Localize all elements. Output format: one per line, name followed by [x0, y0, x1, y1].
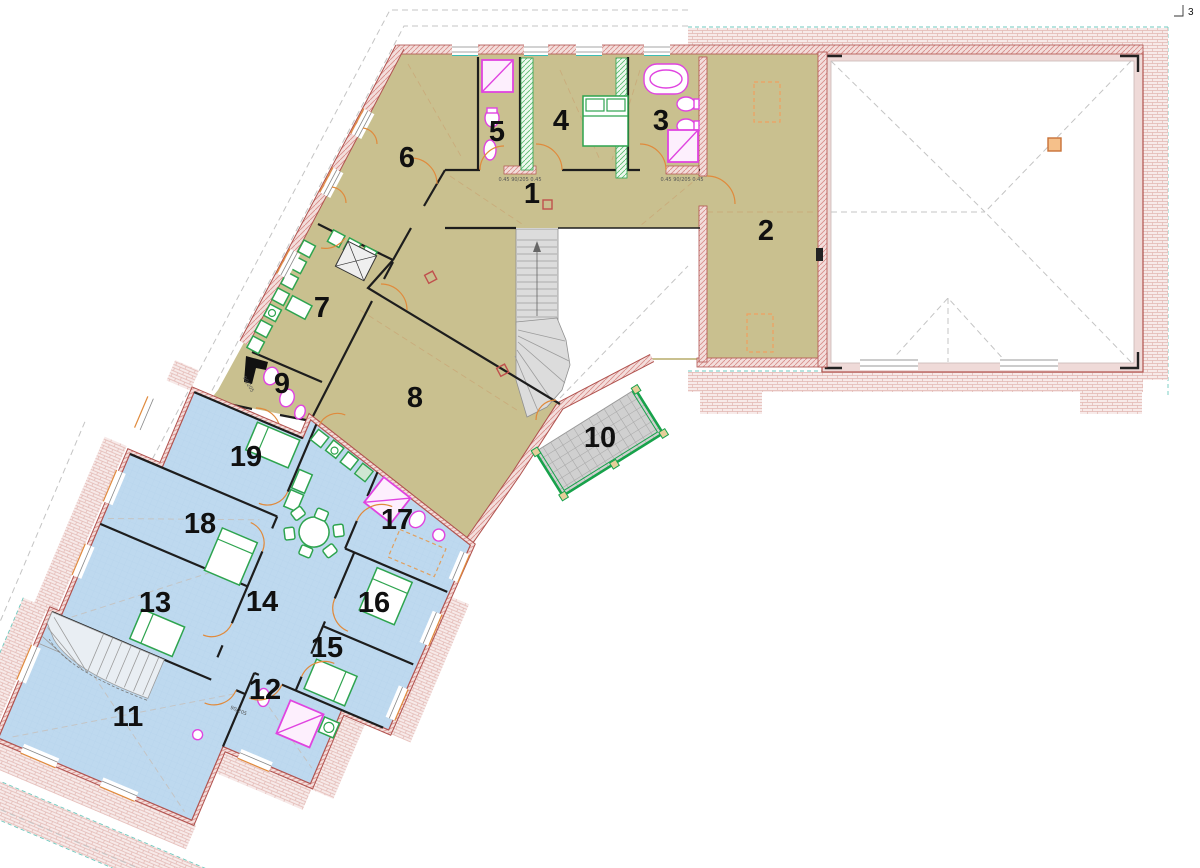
room-label-10: 10	[584, 422, 616, 454]
shower-icon	[482, 60, 513, 92]
room-label-19: 19	[230, 441, 262, 473]
room-label-9: 9	[274, 368, 290, 400]
room-label-4: 4	[553, 105, 569, 137]
room-label-13: 13	[139, 587, 171, 619]
room-label-5: 5	[489, 116, 505, 148]
room-label-3: 3	[653, 105, 669, 137]
room-label-15: 15	[311, 632, 343, 664]
chimney-icon	[1048, 138, 1061, 151]
wardrobe-icon	[521, 58, 533, 170]
room-label-18: 18	[184, 508, 216, 540]
room-label-14: 14	[246, 586, 278, 618]
room-label-1: 1	[524, 178, 540, 210]
wall-tick	[816, 248, 823, 261]
room-label-11: 11	[113, 701, 144, 733]
room-label-12: 12	[249, 674, 281, 706]
bed-icon	[583, 96, 628, 146]
room-label-7: 7	[314, 292, 330, 324]
floor-plan-page: 0.45 90/205 0.45 0.45 90/205 0.45	[0, 0, 1200, 868]
room-label-17: 17	[381, 504, 413, 536]
section-marker: 3	[1174, 5, 1194, 18]
room-label-16: 16	[358, 587, 390, 619]
bathtub-icon	[644, 64, 688, 94]
shower-icon	[668, 130, 698, 162]
room-label-6: 6	[399, 142, 415, 174]
floor-plan-drawing: 0.45 90/205 0.45 0.45 90/205 0.45	[0, 0, 1200, 868]
section-marker-label: 3	[1188, 7, 1194, 18]
window-dimension-annotation: 0.45 90/205 0.45	[660, 177, 703, 183]
toilet-icon	[677, 97, 699, 111]
roof-area	[822, 52, 1143, 372]
room-label-8: 8	[407, 382, 423, 414]
room-label-2: 2	[758, 215, 774, 247]
